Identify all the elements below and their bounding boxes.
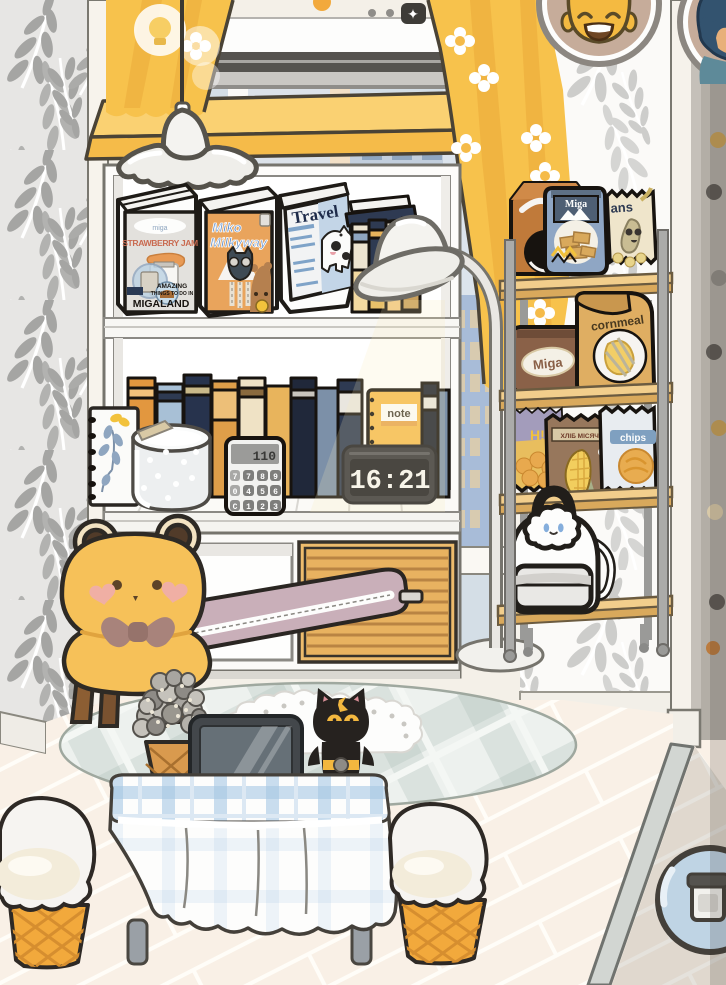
- svg-text:Miga: Miga: [565, 199, 587, 210]
- svg-text:MIGALAND: MIGALAND: [133, 298, 190, 310]
- svg-text:miga: miga: [152, 225, 167, 232]
- svg-text:0: 0: [233, 488, 238, 497]
- svg-text:6: 6: [273, 488, 278, 497]
- svg-text:1: 1: [246, 503, 251, 512]
- svg-text:ans: ans: [610, 199, 633, 216]
- svg-text:8: 8: [260, 473, 265, 482]
- svg-text:7: 7: [233, 473, 238, 482]
- svg-text:STRAWBERRY JAM: STRAWBERRY JAM: [122, 238, 198, 248]
- svg-text:AMAZING: AMAZING: [157, 283, 187, 290]
- svg-text:THINGS TO DO IN: THINGS TO DO IN: [151, 291, 194, 297]
- svg-text:4: 4: [246, 488, 251, 497]
- svg-text:110: 110: [253, 449, 277, 464]
- svg-text:3: 3: [273, 503, 278, 512]
- svg-text:Miko: Miko: [212, 220, 242, 235]
- svg-text:✦: ✦: [407, 6, 419, 22]
- svg-text:C: C: [233, 503, 238, 512]
- svg-text:5: 5: [260, 488, 265, 497]
- svg-text:9: 9: [273, 473, 278, 482]
- svg-text:2: 2: [260, 503, 265, 512]
- svg-text:7: 7: [246, 473, 251, 482]
- svg-text:Milkyway: Milkyway: [210, 235, 268, 250]
- svg-text:Miga: Miga: [532, 354, 564, 372]
- svg-text:chips: chips: [620, 433, 647, 444]
- svg-text:H!: H!: [530, 427, 545, 443]
